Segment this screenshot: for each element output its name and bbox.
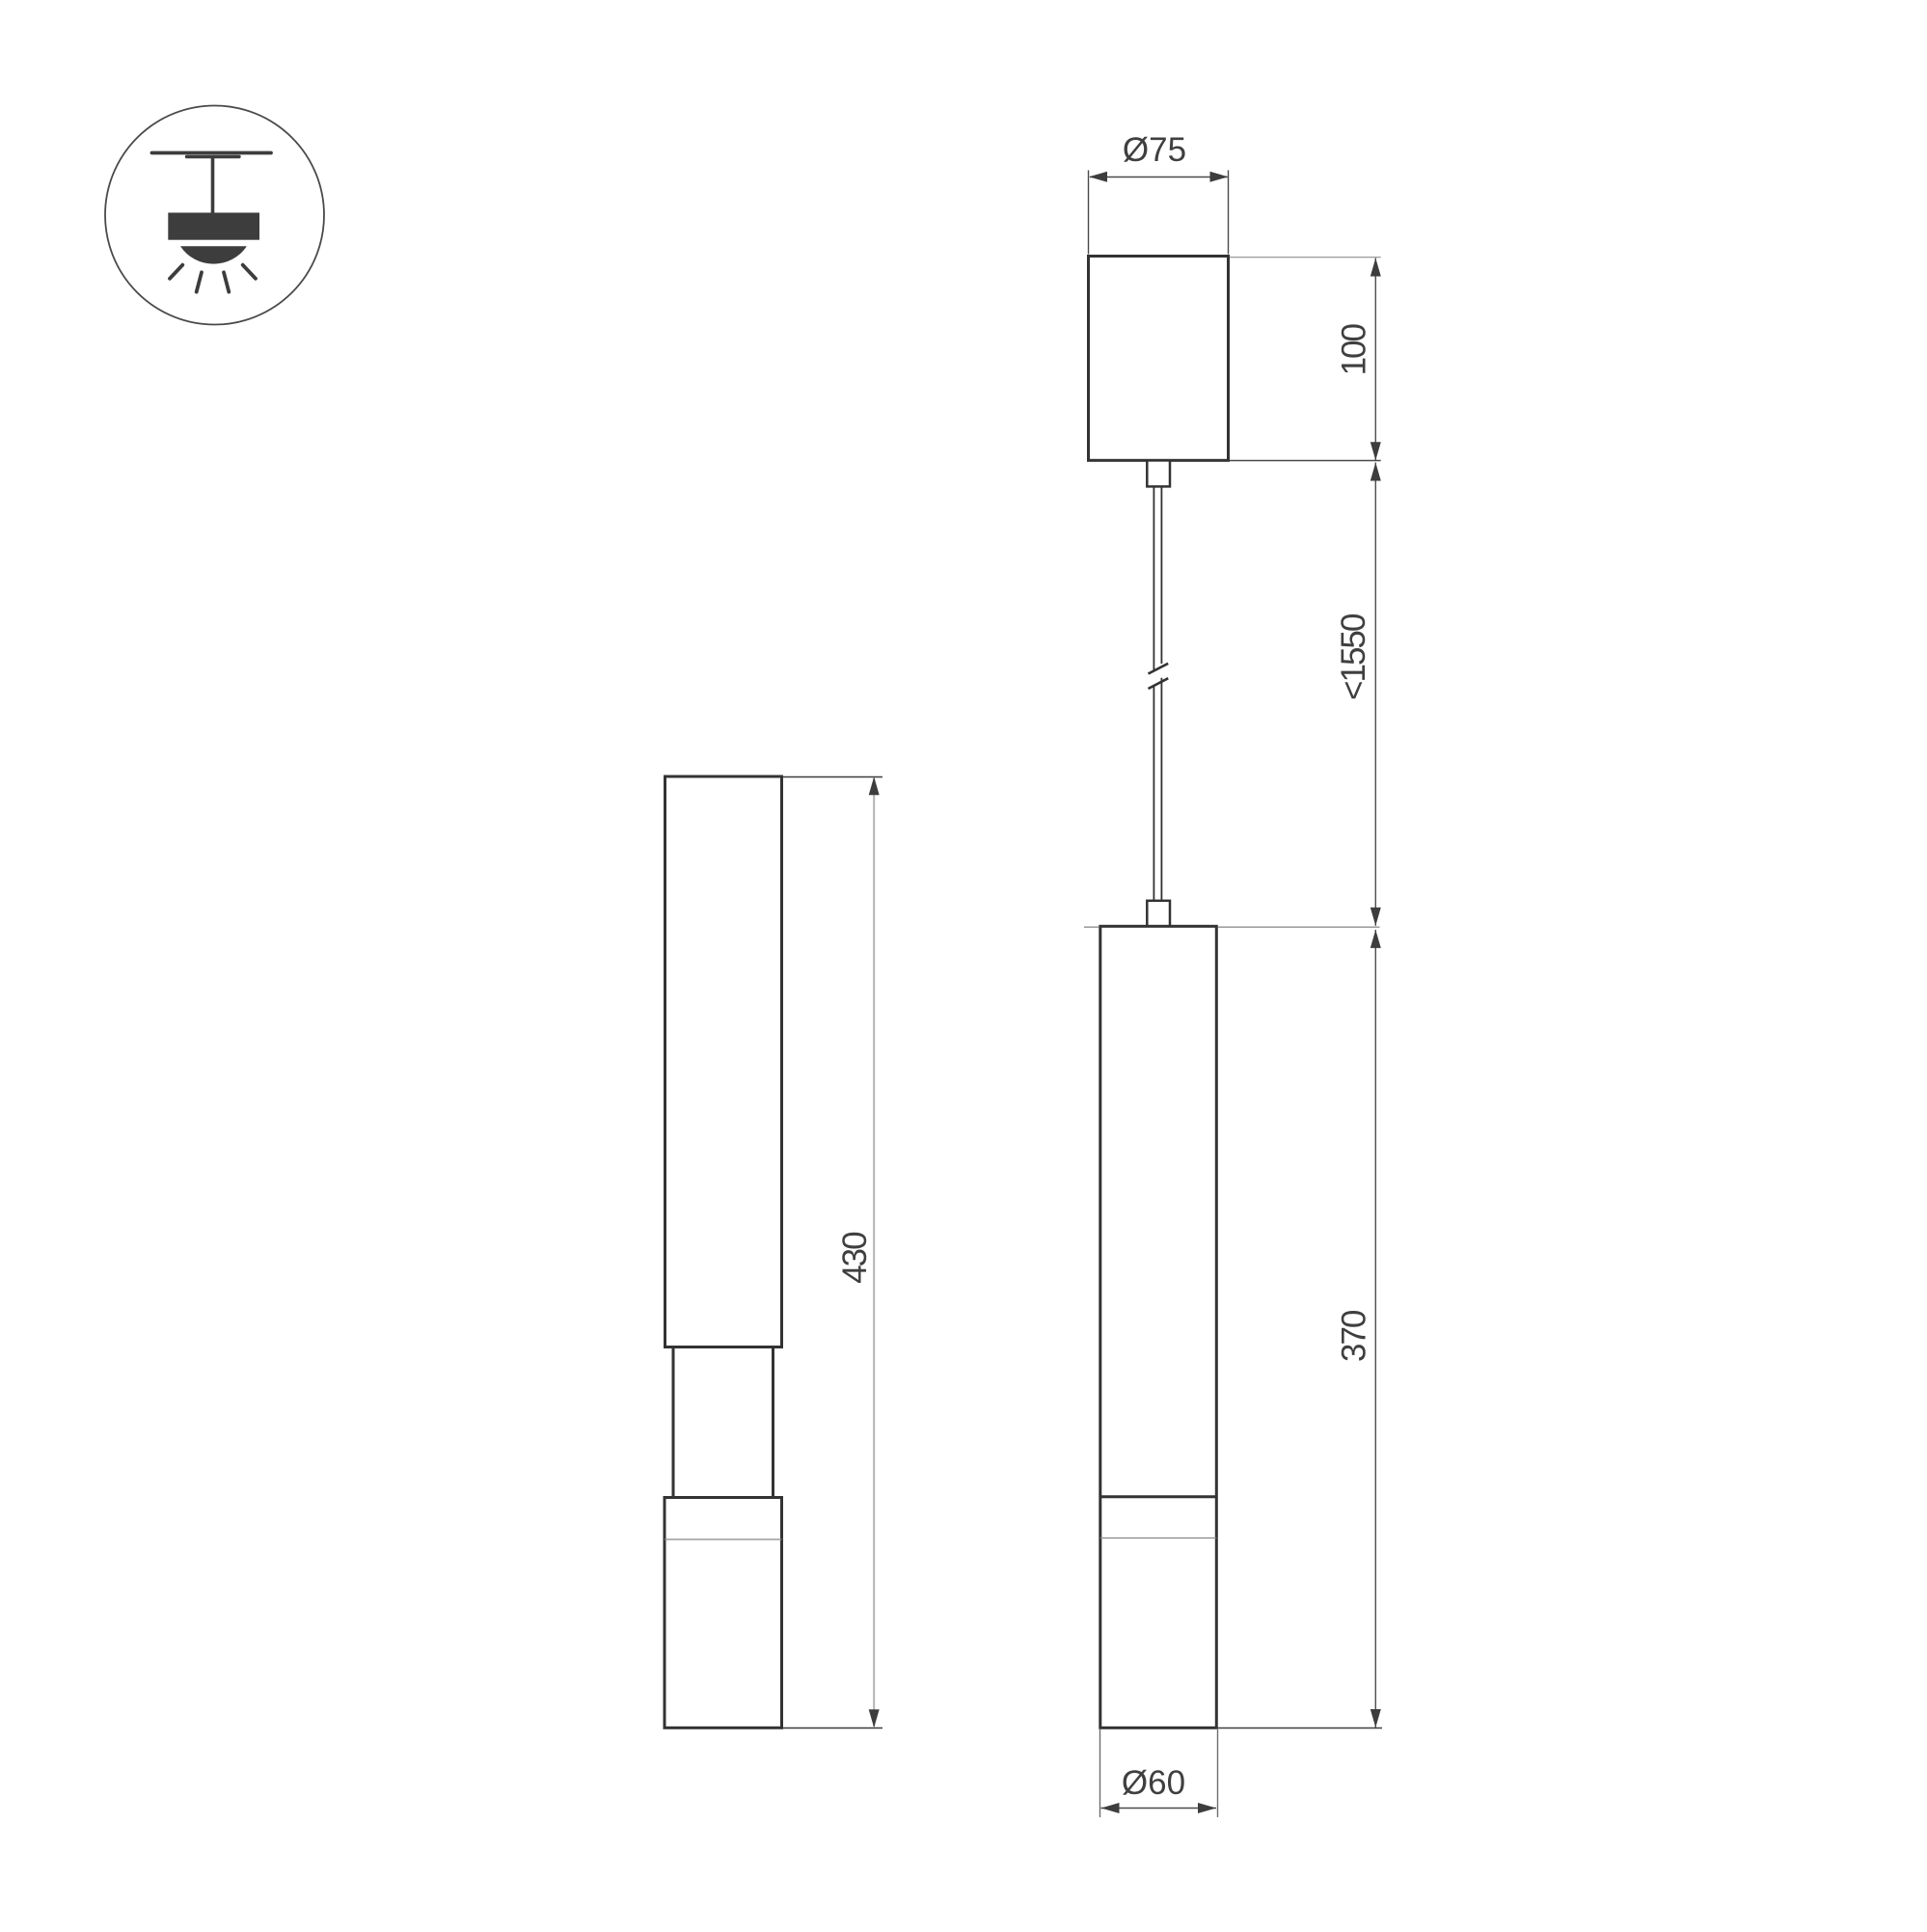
svg-text:370: 370: [1336, 1310, 1373, 1362]
svg-text:Ø75: Ø75: [1123, 131, 1186, 169]
svg-text:430: 430: [836, 1232, 874, 1284]
svg-text:Ø60: Ø60: [1122, 1764, 1185, 1802]
svg-text:100: 100: [1335, 323, 1372, 375]
svg-text:<1550: <1550: [1335, 613, 1372, 700]
